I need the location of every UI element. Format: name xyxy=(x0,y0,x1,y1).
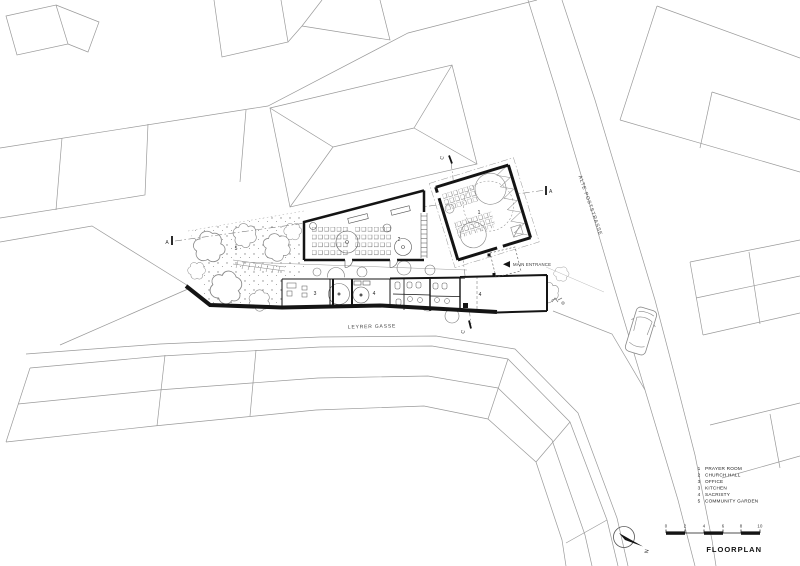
legend-num: 2 xyxy=(698,473,701,478)
room-label-kitchen: 4 xyxy=(373,291,376,297)
legend-num: 1 xyxy=(698,466,701,471)
sacristy-stove xyxy=(463,303,468,308)
entrance-arrow-icon xyxy=(503,261,510,268)
prayer-room xyxy=(429,158,539,268)
north-label: N xyxy=(642,549,649,554)
svg-text:C: C xyxy=(460,329,467,334)
room-label-hall: 2 xyxy=(398,237,401,243)
legend-num: 5 xyxy=(698,499,701,504)
scale-tick: 10 xyxy=(757,524,763,529)
scale-tick: 6 xyxy=(722,524,725,529)
legend-label: COMMUNITY GARDEN xyxy=(705,499,758,504)
scale-tick: 4 xyxy=(703,524,706,529)
section-marker-c-top: C xyxy=(439,155,452,163)
legend-label: PRAYER ROOM xyxy=(705,466,742,471)
room-label-sacristy: 4 xyxy=(479,292,482,298)
drawing-title: FLOORPLAN xyxy=(706,545,762,554)
legend: 1 PRAYER ROOM 2 CHURCH HALL 3 OFFICE 3 K… xyxy=(698,466,759,504)
scale-tick: 2 xyxy=(684,524,687,529)
room-label-prayer: 1 xyxy=(478,210,481,216)
floorplan-page: MAIN ENTRANCE 1 2 3 4 4 5 LEYRER GASSE A… xyxy=(0,0,800,566)
legend-label: OFFICE xyxy=(705,479,723,484)
scale-tick: 8 xyxy=(740,524,743,529)
legend-label: KITCHEN xyxy=(705,486,727,491)
north-arrow: N xyxy=(614,527,649,554)
scale-tick: 0 xyxy=(665,524,668,529)
room-label-garden: 5 xyxy=(235,246,238,252)
svg-text:A: A xyxy=(165,240,169,246)
room-label-office: 3 xyxy=(314,291,317,297)
section-marker-a-right: A xyxy=(546,186,553,195)
church-hall xyxy=(303,189,427,268)
row-houses-band xyxy=(6,336,628,566)
legend-label: CHURCH HALL xyxy=(705,473,741,478)
legend-num: 3 xyxy=(698,479,701,484)
floorplan-drawing: MAIN ENTRANCE 1 2 3 4 4 5 LEYRER GASSE A… xyxy=(0,0,800,566)
svg-text:C: C xyxy=(439,155,446,160)
section-marker-c-bottom: C xyxy=(460,321,471,335)
street-alte-poststrasse xyxy=(528,0,716,566)
svg-text:A: A xyxy=(549,189,553,195)
section-marker-a-left: A xyxy=(165,236,172,246)
hall-seating xyxy=(312,227,348,256)
parked-car xyxy=(622,305,659,356)
street-label-alte-poststrasse: ALTE POSTSTRASSE xyxy=(577,175,604,237)
scale-bar: 0 2 4 6 8 10 xyxy=(665,524,763,535)
legend-num: 4 xyxy=(698,492,701,497)
street-label-leyrer-gasse: LEYRER GASSE xyxy=(348,323,396,330)
legend-label: SACRISTY xyxy=(705,492,731,497)
legend-num: 3 xyxy=(698,486,701,491)
main-entrance-label: MAIN ENTRANCE xyxy=(513,262,551,267)
